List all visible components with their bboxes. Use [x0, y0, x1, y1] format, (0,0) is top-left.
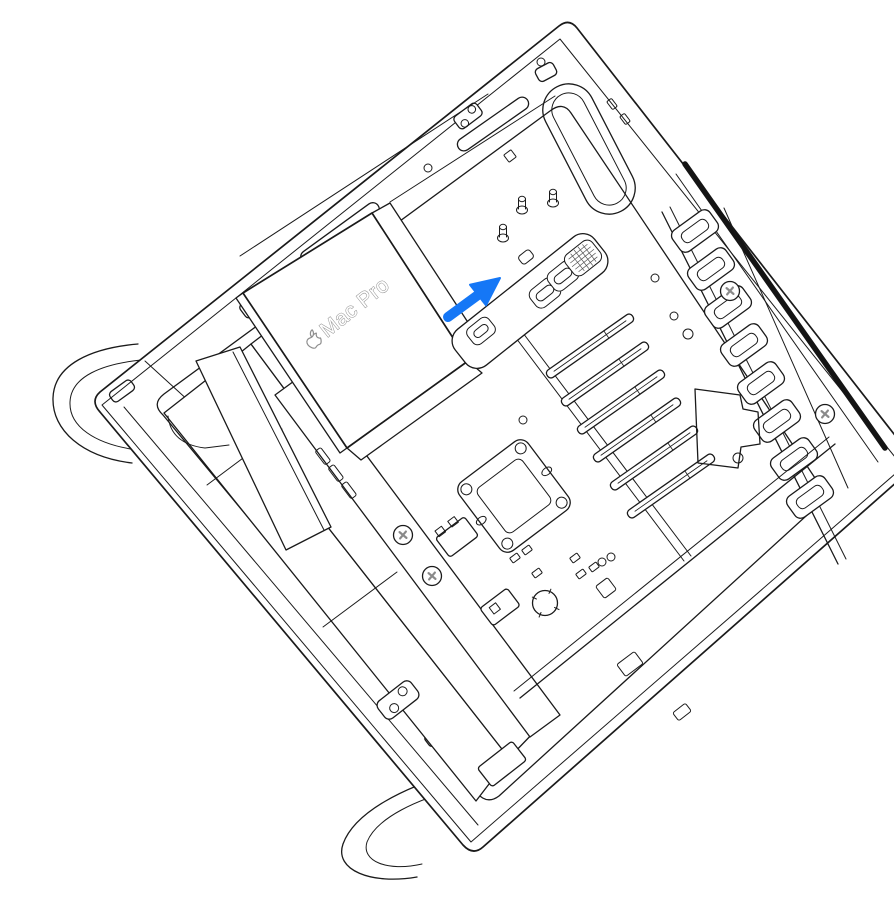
- screw: [394, 526, 413, 545]
- screw: [816, 405, 835, 424]
- illustration-canvas: Mac Pro: [40, 16, 894, 892]
- mac-pro-open-side-illustration: Mac Pro: [40, 16, 894, 892]
- screw: [721, 282, 740, 301]
- screw: [423, 567, 442, 586]
- cage-clip: [673, 703, 692, 721]
